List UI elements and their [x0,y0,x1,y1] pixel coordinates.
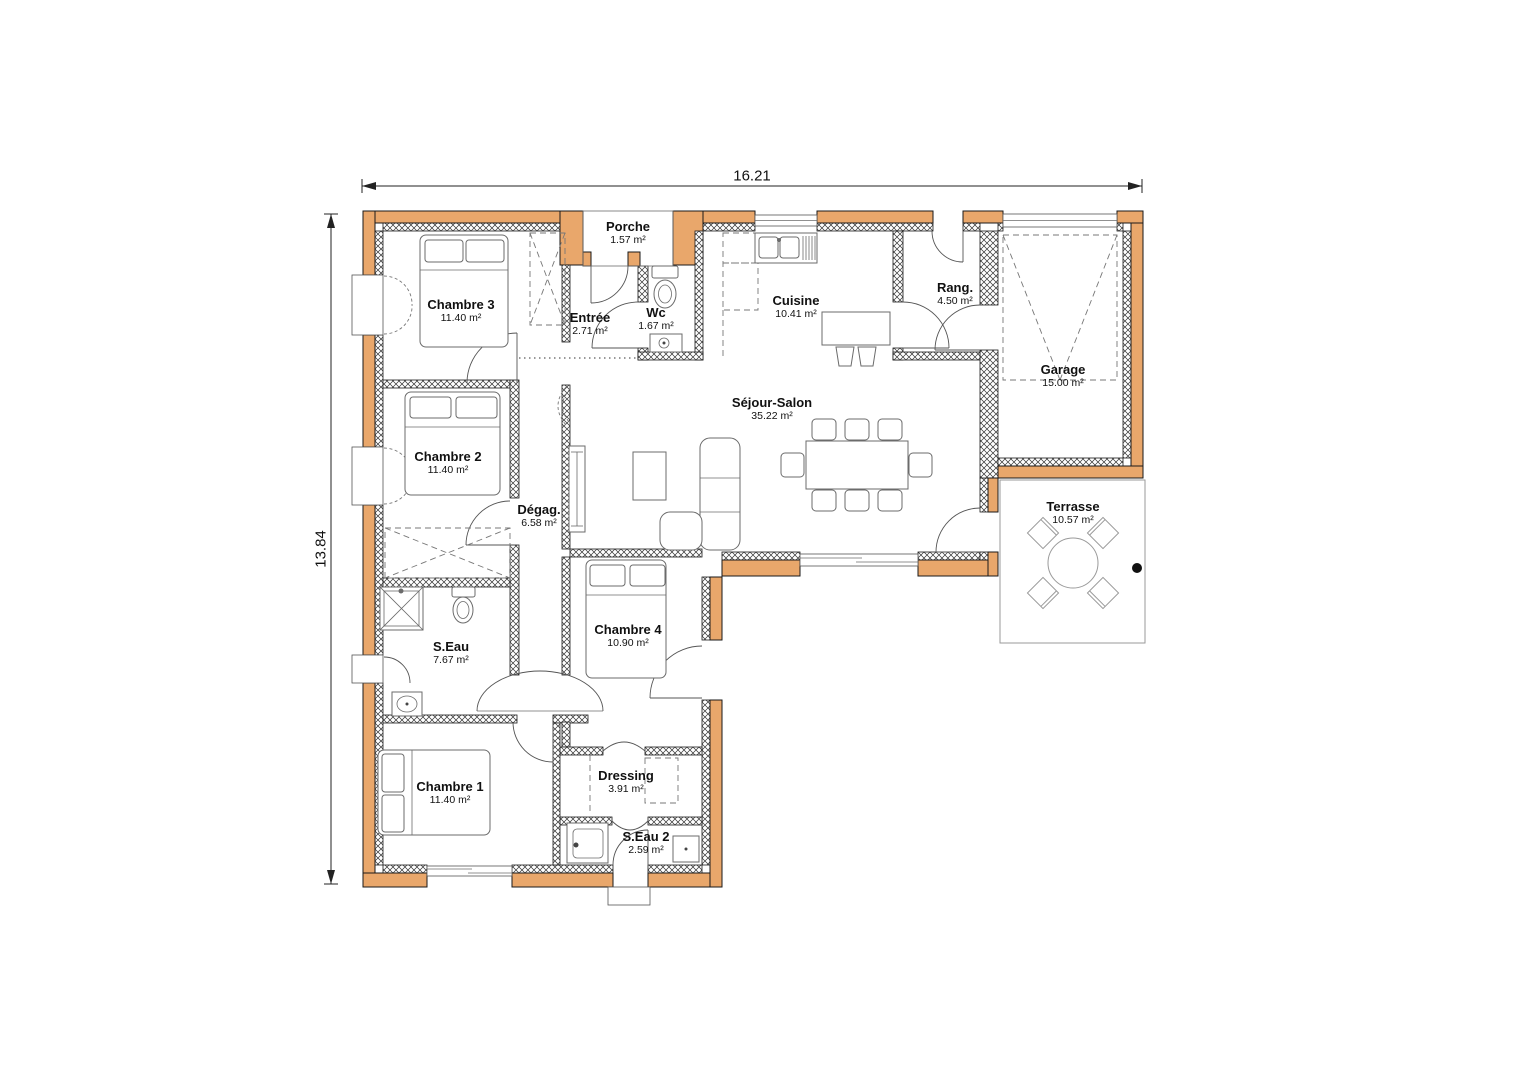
entry-step-icon [608,887,650,905]
hall-double-door-icon [477,671,603,711]
bed-chambre2-icon [405,392,500,495]
room-label-chambre2: Chambre 211.40 m² [414,450,481,477]
radiator-icon [569,446,585,532]
wc-vanity-icon [650,334,682,352]
floor-plan-drawing [0,0,1527,1080]
garage-markings [1003,235,1117,380]
room-label-sejour: Séjour-Salon35.22 m² [732,396,812,423]
stool-icon [836,347,854,366]
terrace-post-icon [1132,563,1142,573]
room-label-garage: Garage15.00 m² [1041,363,1086,390]
room-label-terrasse: Terrasse10.57 m² [1046,500,1099,527]
room-label-degag: Dégag.6.58 m² [517,503,560,530]
room-label-seau: S.Eau7.67 m² [433,640,469,667]
chambre1-door-icon [513,722,553,762]
bed-chambre4-icon [586,560,666,678]
bay-window-icon [800,554,918,566]
room-label-wc: Wc1.67 m² [638,306,674,333]
terrace-door-icon [936,508,980,552]
room-label-entree: Entrée2.71 m² [570,311,610,338]
room-label-chambre3: Chambre 311.40 m² [427,298,494,325]
coffee-table-icon [633,452,666,500]
sofa-icon [660,438,740,550]
chambre2-door-icon [466,501,510,545]
room-label-dressing: Dressing3.91 m² [598,769,654,796]
rang-exterior-door-icon [932,231,963,262]
room-label-chambre4: Chambre 410.90 m² [594,623,661,650]
wc-toilet-icon [652,266,678,308]
kitchen-island-icon [822,312,890,366]
floor-plan-canvas: 16.21 13.84 Porche1.57 m² Chambre 311.40… [0,0,1527,1080]
shower-icon [380,587,423,630]
terrace-table-icon [1027,517,1118,608]
stool-icon [858,347,876,366]
window-casement-icon [384,276,412,304]
entry-door-icon [591,266,628,303]
room-label-porche: Porche1.57 m² [606,220,650,247]
seau2-cabinet-icon [673,836,699,862]
room-label-rang: Rang.4.50 m² [937,281,973,308]
seau-washbasin-icon [392,692,422,716]
garage-access-door-icon [935,305,980,350]
room-label-chambre1: Chambre 111.40 m² [416,780,483,807]
dimension-width-label: 16.21 [733,168,771,185]
bed-chambre3-icon [420,235,508,347]
seau2-washbasin-icon [567,823,608,863]
dimension-height-label: 13.84 [313,530,330,568]
seau-toilet-icon [452,587,475,623]
kitchen-sink-icon [755,233,817,263]
dining-table-icon [781,419,932,511]
room-label-cuisine: Cuisine10.41 m² [773,294,820,321]
room-label-seau2: S.Eau 22.59 m² [623,830,670,857]
dressing-opening-icon [603,742,645,751]
